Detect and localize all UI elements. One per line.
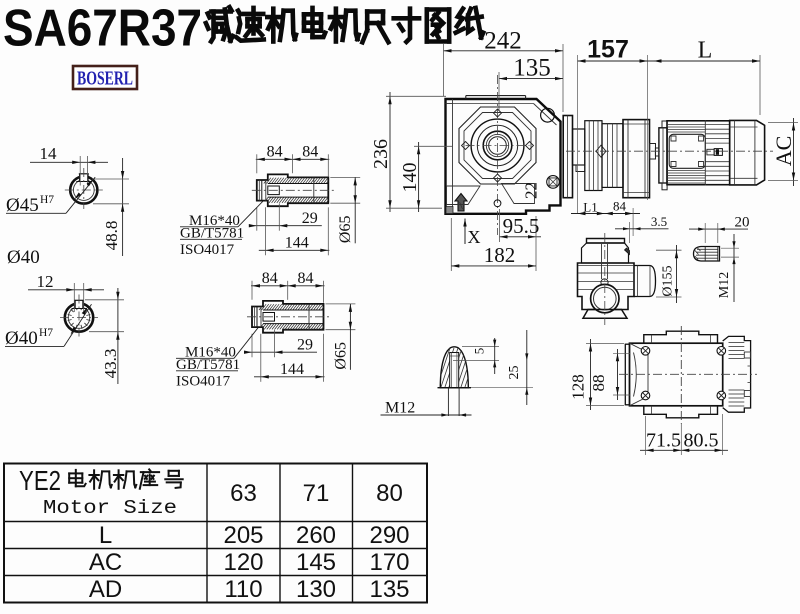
- svg-text:135: 135: [369, 576, 409, 603]
- svg-text:H7: H7: [39, 327, 53, 339]
- svg-text:71: 71: [303, 480, 330, 507]
- svg-text:M12: M12: [385, 400, 415, 417]
- svg-text:170: 170: [369, 549, 409, 576]
- svg-text:ISO4017: ISO4017: [180, 242, 235, 258]
- svg-text:AC: AC: [771, 136, 796, 167]
- svg-text:84: 84: [267, 143, 283, 160]
- svg-text:290: 290: [369, 522, 409, 549]
- svg-text:84: 84: [613, 199, 627, 214]
- svg-text:BOSERL: BOSERL: [77, 68, 133, 90]
- svg-text:20: 20: [735, 215, 750, 231]
- svg-text:145: 145: [296, 549, 336, 576]
- svg-text:110: 110: [224, 576, 262, 603]
- svg-text:128: 128: [569, 374, 588, 400]
- svg-text:71.5: 71.5: [646, 430, 681, 452]
- svg-text:80: 80: [376, 480, 403, 507]
- svg-text:120: 120: [223, 549, 263, 576]
- svg-text:Ø65: Ø65: [337, 216, 354, 244]
- svg-text:48.8: 48.8: [102, 221, 121, 251]
- svg-text:SA67R37: SA67R37: [3, 0, 202, 58]
- svg-text:12: 12: [37, 272, 54, 291]
- svg-text:L: L: [698, 38, 713, 64]
- svg-text:YE2: YE2: [19, 465, 61, 496]
- svg-text:88: 88: [589, 375, 608, 392]
- svg-text:Ø40: Ø40: [7, 247, 40, 268]
- svg-text:205: 205: [223, 522, 263, 549]
- svg-text:242: 242: [484, 28, 522, 55]
- svg-text:43.3: 43.3: [101, 349, 120, 379]
- svg-text:14: 14: [40, 144, 58, 163]
- svg-text:Ø40: Ø40: [5, 328, 38, 349]
- svg-text:140: 140: [399, 163, 421, 193]
- svg-text:236: 236: [370, 139, 392, 169]
- svg-text:Ø155: Ø155: [661, 265, 676, 296]
- svg-text:L: L: [99, 522, 112, 549]
- svg-text:84: 84: [302, 143, 318, 160]
- svg-text:Motor Size: Motor Size: [43, 497, 177, 519]
- svg-text:29: 29: [297, 337, 313, 354]
- svg-text:144: 144: [285, 234, 309, 251]
- svg-text:182: 182: [484, 243, 516, 267]
- svg-text:H7: H7: [40, 194, 54, 206]
- svg-text:5: 5: [472, 348, 487, 355]
- svg-text:AC: AC: [89, 549, 122, 576]
- svg-text:L1: L1: [583, 200, 597, 215]
- svg-text:157: 157: [587, 36, 629, 64]
- svg-text:84: 84: [298, 270, 314, 287]
- svg-text:M12: M12: [717, 272, 732, 298]
- svg-text:84: 84: [262, 270, 278, 287]
- svg-text:80.5: 80.5: [684, 430, 719, 452]
- svg-text:AD: AD: [89, 576, 122, 603]
- svg-text:135: 135: [513, 55, 551, 82]
- svg-text:X: X: [468, 227, 481, 247]
- svg-text:Ø65: Ø65: [332, 342, 349, 370]
- svg-text:22: 22: [522, 182, 541, 199]
- svg-text:63: 63: [230, 480, 257, 507]
- svg-text:144: 144: [280, 361, 304, 378]
- svg-text:130: 130: [296, 576, 336, 603]
- svg-text:ISO4017: ISO4017: [176, 373, 231, 389]
- svg-text:95.5: 95.5: [503, 214, 540, 238]
- svg-text:3.5: 3.5: [651, 214, 667, 229]
- svg-text:29: 29: [302, 210, 318, 227]
- svg-text:260: 260: [296, 522, 336, 549]
- svg-text:25: 25: [507, 366, 522, 380]
